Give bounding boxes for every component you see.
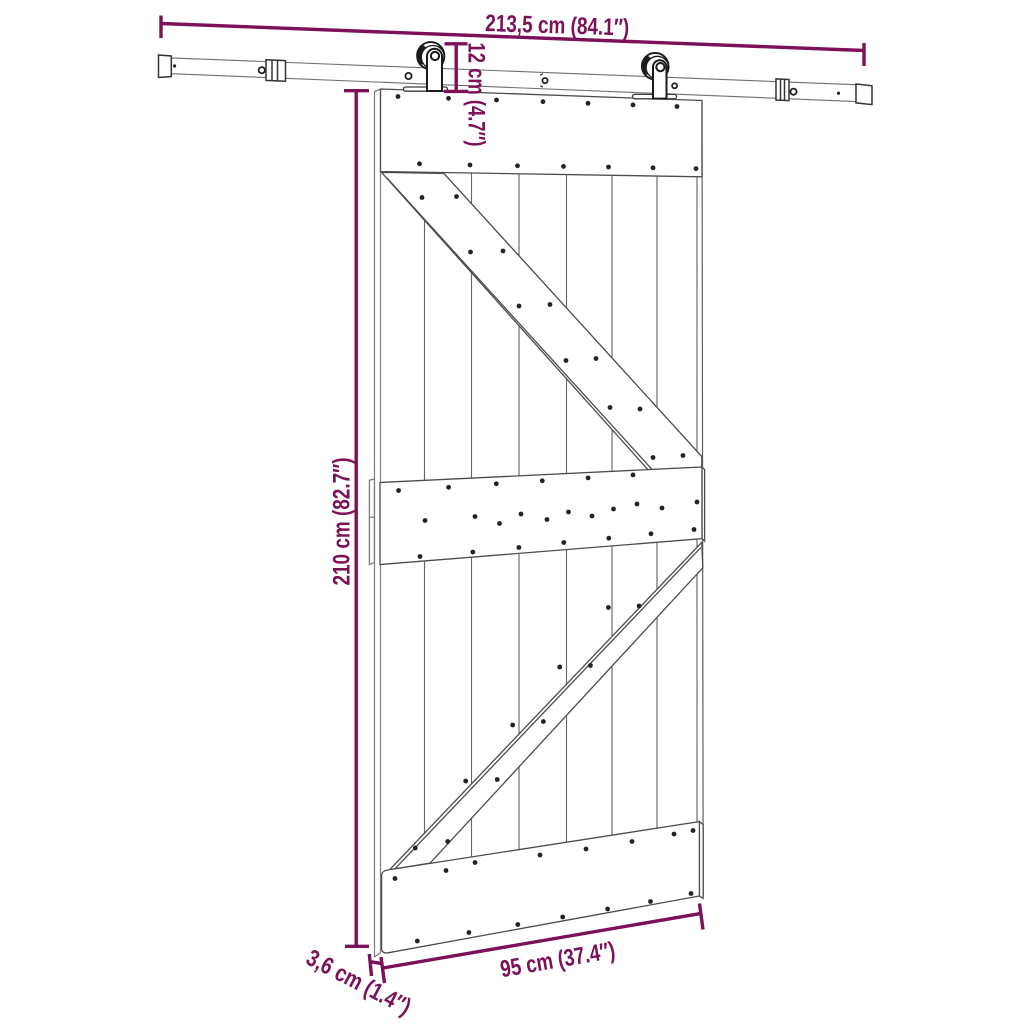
svg-text:213,5 cm (84.1″): 213,5 cm (84.1″) (485, 10, 630, 42)
svg-text:12 cm (4.7″): 12 cm (4.7″) (463, 43, 490, 147)
svg-text:210 cm (82.7″): 210 cm (82.7″) (329, 458, 356, 586)
